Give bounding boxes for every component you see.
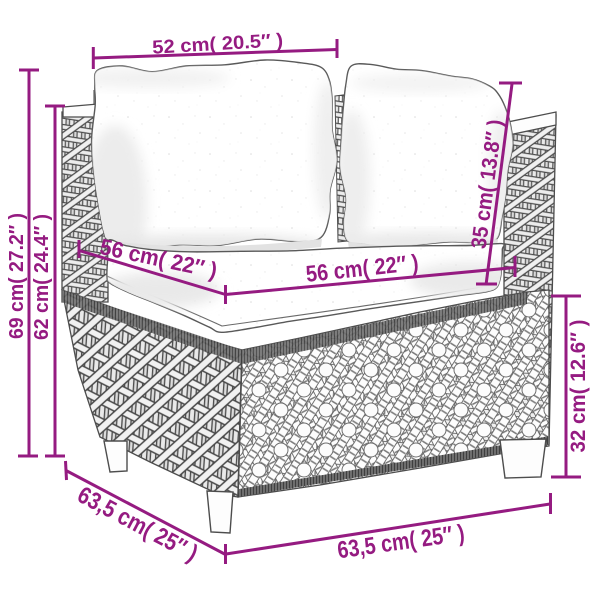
svg-text:32 cm( 12.6″ ): 32 cm( 12.6″ ) [567,320,590,453]
svg-text:69 cm( 27.2″ ): 69 cm( 27.2″ ) [5,213,28,339]
svg-text:62 cm( 24.4″ ): 62 cm( 24.4″ ) [30,214,53,340]
